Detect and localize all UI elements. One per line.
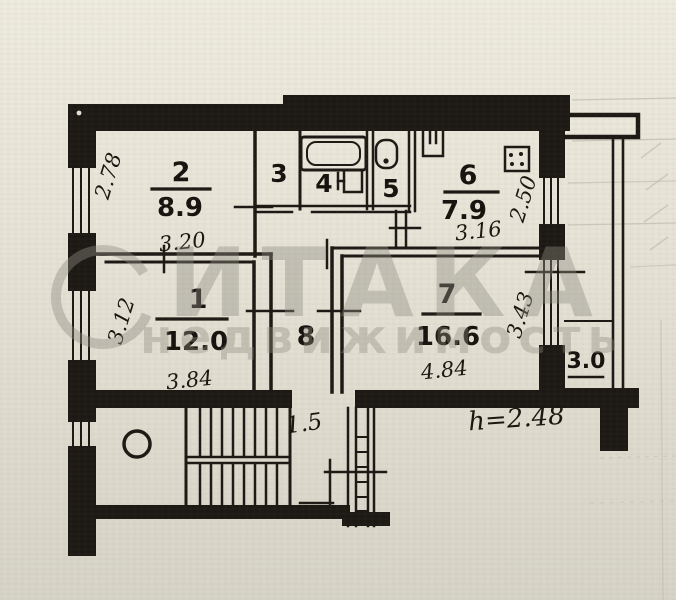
sink-icon (338, 170, 362, 192)
floor-plan-drawing: 2 8.9 3 4 5 6 7.9 1 12.0 7 16.6 8 3.0 3.… (0, 0, 676, 600)
room-5-number: 5 (382, 174, 399, 203)
scanned-floor-plan-page: 2 8.9 3 4 5 6 7.9 1 12.0 7 16.6 8 3.0 3.… (0, 0, 676, 600)
room-3-number: 3 (270, 159, 287, 188)
ceiling-height-note: h=2.48 (467, 401, 565, 438)
balcony-top-slab (562, 115, 638, 137)
vent-icon (423, 131, 443, 156)
dim-room1-width: 3.84 (165, 366, 214, 395)
watermark-logo-icon (56, 250, 150, 344)
room-2-number: 2 (172, 157, 191, 188)
room-6-number: 6 (459, 160, 478, 191)
room-2-area: 8.9 (157, 193, 203, 223)
room-4-number: 4 (315, 169, 332, 198)
toilet-icon (376, 140, 397, 168)
trash-chute-icon (124, 431, 150, 457)
dim-room6-depth: 2.50 (505, 173, 542, 226)
bathtub-icon (301, 137, 366, 170)
watermark: ИТАКА недвижимость (56, 229, 624, 365)
watermark-subtitle: недвижимость (140, 310, 624, 365)
stove-icon (505, 147, 529, 171)
stair-treads (187, 409, 290, 505)
dim-passage: 1.5 (284, 409, 324, 440)
